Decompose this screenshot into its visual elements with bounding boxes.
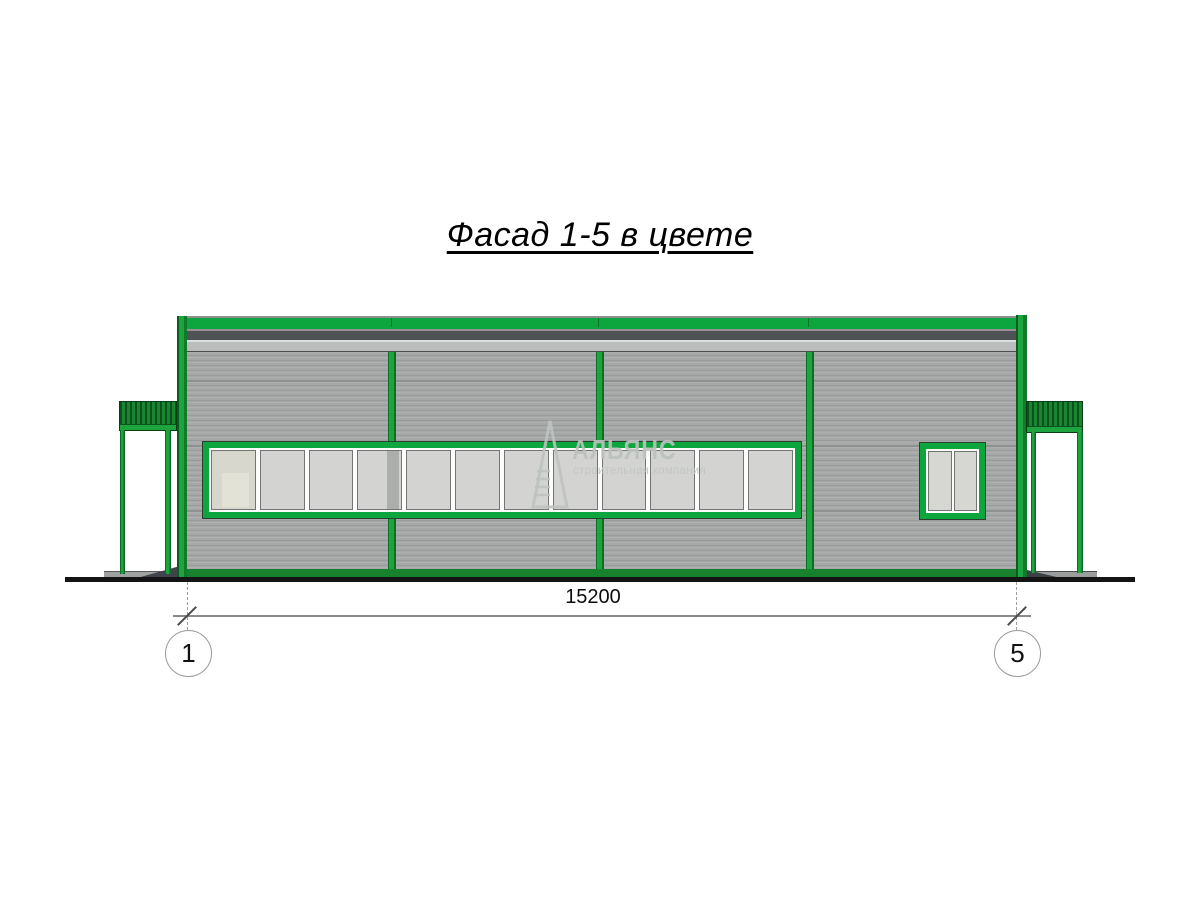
axis-label-right: 5 (1010, 638, 1024, 669)
canopy-left-post-outer (120, 430, 125, 574)
fascia-joint-tick (391, 318, 392, 327)
roof-fascia (186, 316, 1018, 352)
window-pane (650, 450, 695, 510)
drawing-title-text: Фасад 1-5 в цвете (443, 216, 758, 254)
small-window-glazing (926, 449, 979, 513)
canopy-left-post-inner (165, 430, 171, 574)
ground-line (65, 577, 1135, 582)
drawing-title: Фасад 1-5 в цвете (0, 216, 1200, 255)
canopy-right (1026, 401, 1083, 433)
fascia-light-band (187, 340, 1017, 351)
column-right (1016, 315, 1027, 577)
axis-label-left: 1 (181, 638, 195, 669)
window-pane (357, 450, 402, 510)
column-left (177, 316, 187, 577)
canopy-left (119, 401, 177, 431)
fascia-joint-tick (808, 318, 809, 327)
axis-bubble-left: 1 (165, 630, 212, 677)
dimension-value: 15200 (520, 586, 666, 609)
window-pane (455, 450, 500, 510)
window-band-glazing (209, 448, 795, 512)
canopy-right-post-inner (1031, 432, 1036, 573)
fascia-dark-band (187, 331, 1017, 340)
canopy-right-post-outer (1077, 432, 1083, 573)
window-band (202, 441, 802, 519)
fascia-joint-tick (598, 318, 599, 327)
axis-bubble-right: 5 (994, 630, 1041, 677)
dimension-line (173, 615, 1031, 617)
window-sash-left (928, 451, 952, 511)
drawing-canvas: Фасад 1-5 в цвете (0, 0, 1200, 900)
window-pane (748, 450, 793, 510)
window-pane (406, 450, 451, 510)
window-pane (504, 450, 549, 510)
window-pane (553, 450, 598, 510)
window-pane (309, 450, 354, 510)
fascia-green-band (187, 318, 1017, 329)
window-pane (602, 450, 647, 510)
small-window (919, 442, 986, 520)
axis-line-left (187, 582, 188, 630)
axis-line-right (1016, 582, 1017, 630)
facade-mullion (806, 352, 814, 570)
window-pane (211, 450, 256, 510)
window-pane (699, 450, 744, 510)
window-sash-right (954, 451, 978, 511)
window-pane (260, 450, 305, 510)
